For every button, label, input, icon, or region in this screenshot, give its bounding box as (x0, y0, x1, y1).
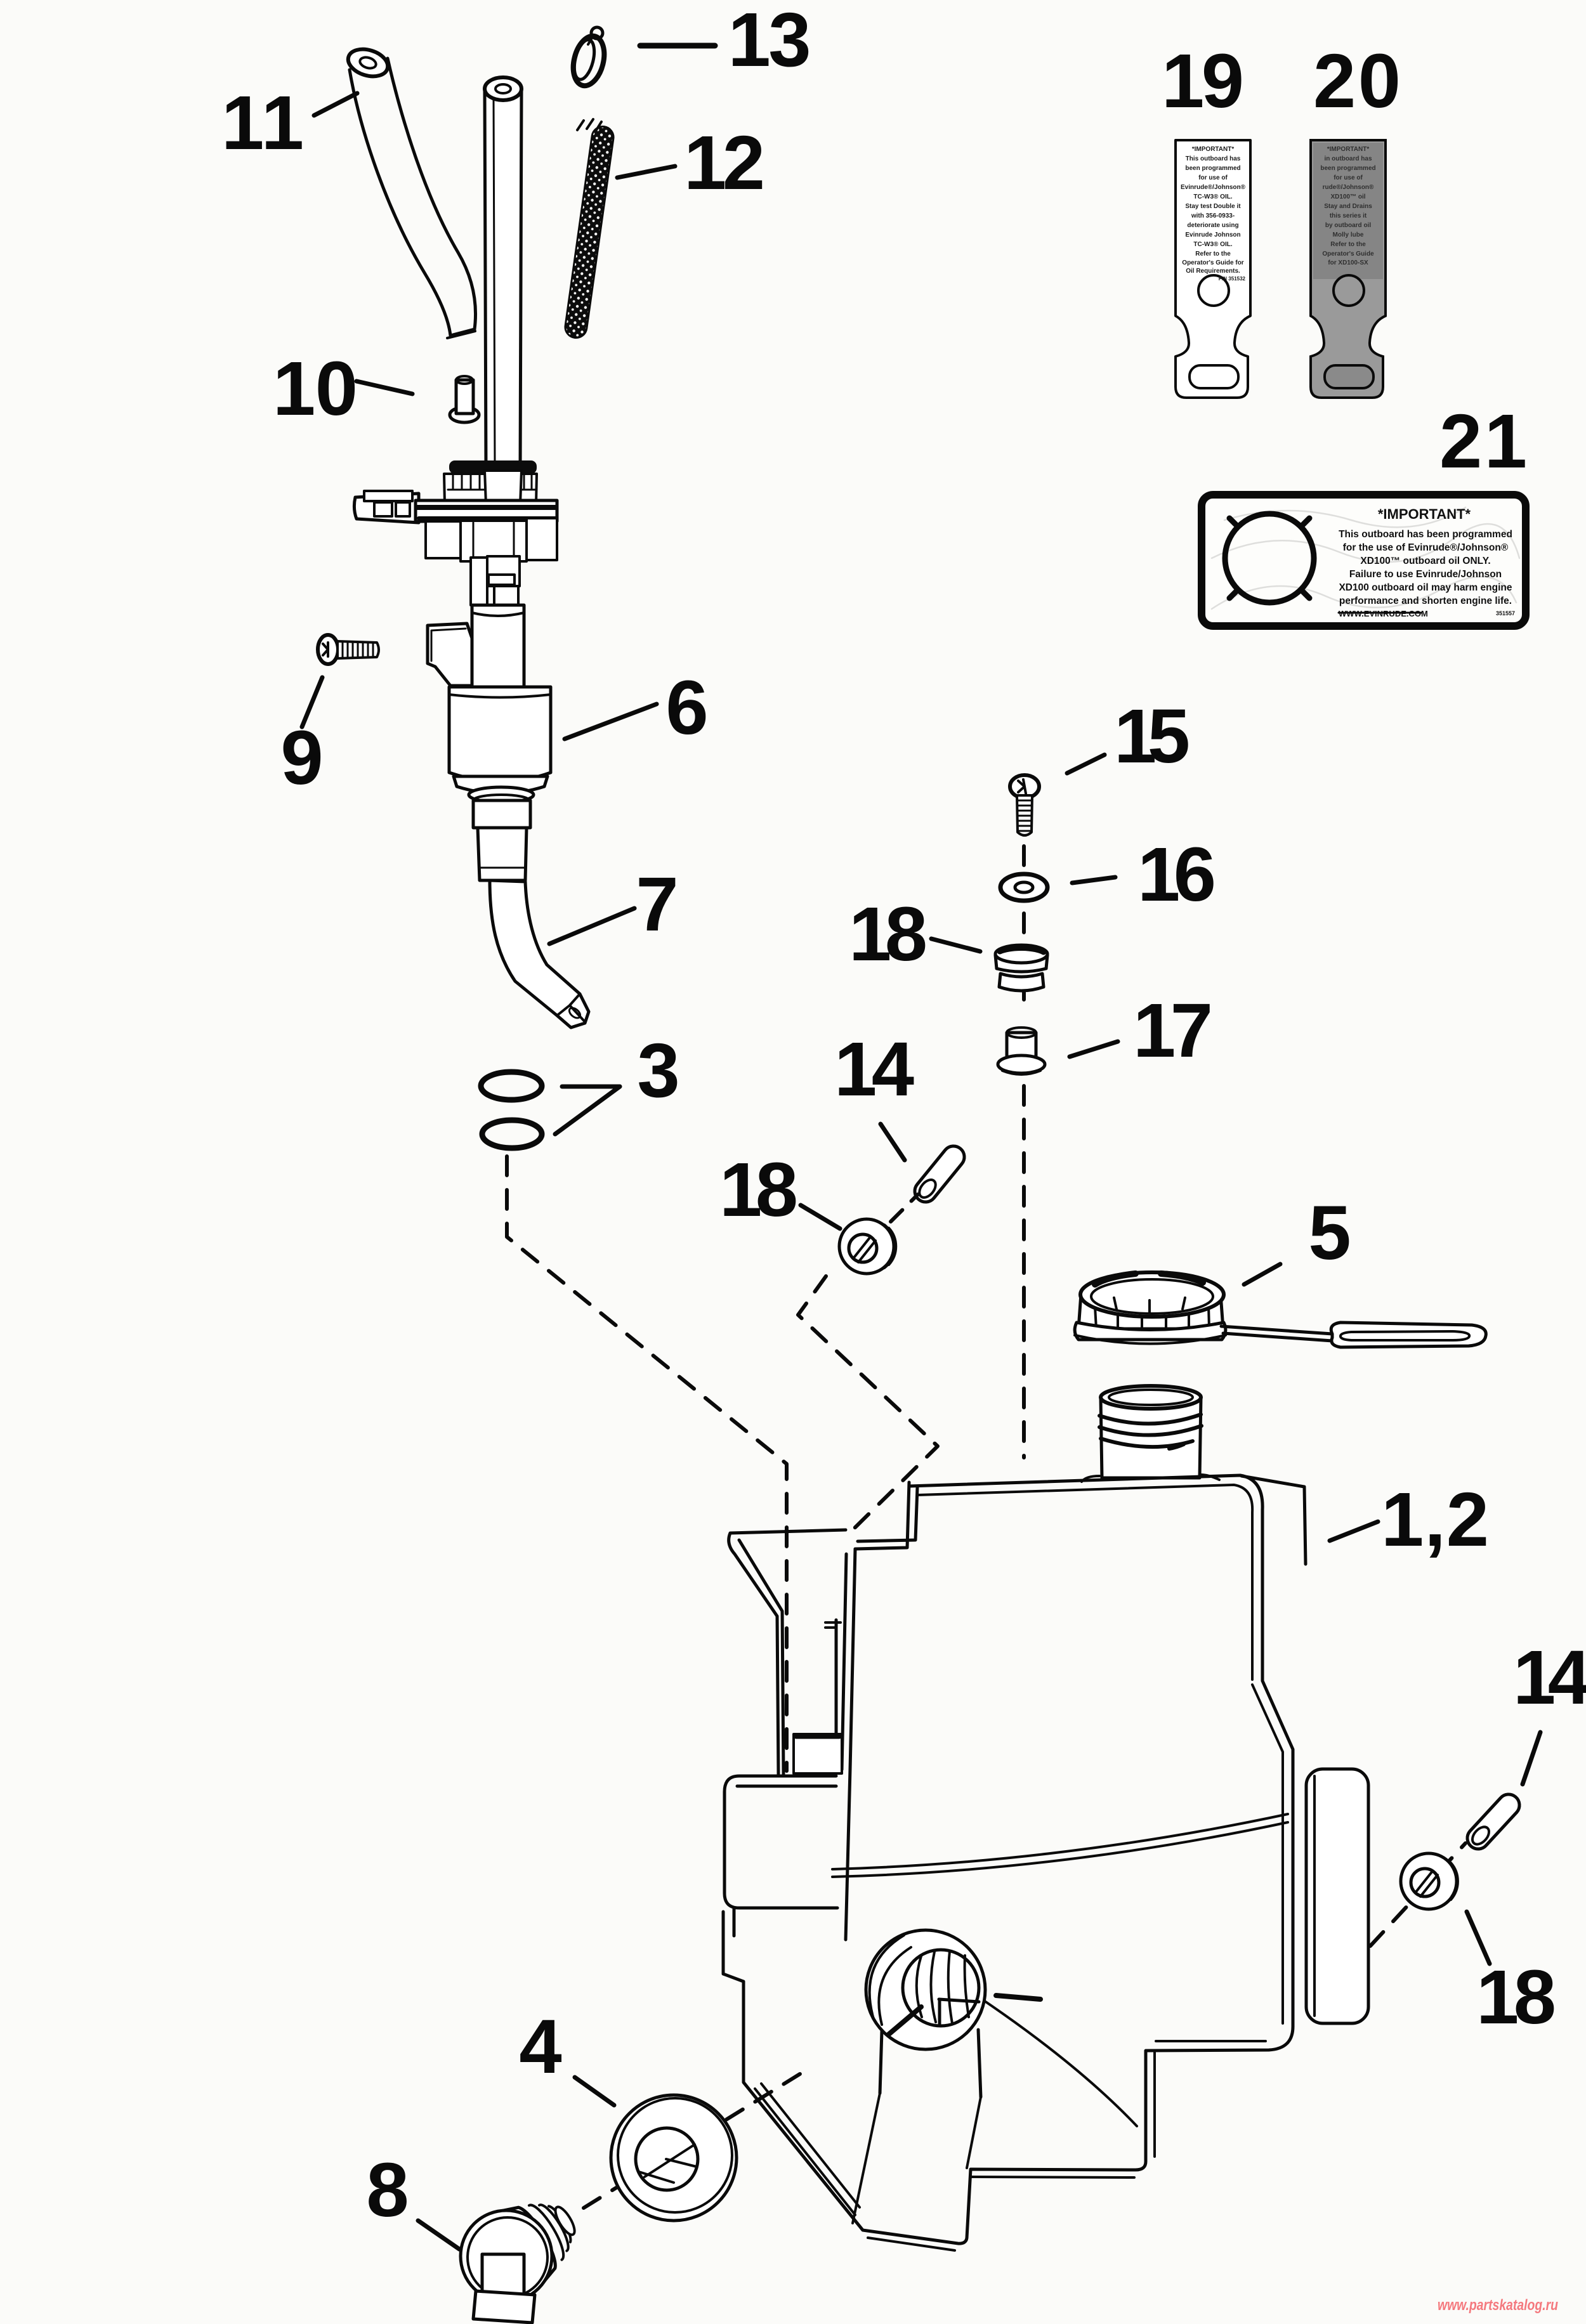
svg-text:for the use of Evinrude®/Johns: for the use of Evinrude®/Johnson® (1343, 542, 1509, 553)
svg-text:with 356-0933-: with 356-0933- (1191, 212, 1235, 219)
svg-text:14: 14 (834, 1026, 914, 1112)
svg-text:Refer to the: Refer to the (1330, 241, 1366, 248)
svg-text:351557: 351557 (1496, 610, 1515, 617)
svg-text:XD100™ outboard oil ONLY.: XD100™ outboard oil ONLY. (1360, 556, 1490, 566)
svg-text:by outboard oil: by outboard oil (1325, 222, 1371, 229)
svg-text:*IMPORTANT*: *IMPORTANT* (1378, 506, 1471, 522)
svg-text:Molly lube: Molly lube (1333, 232, 1364, 238)
svg-text:for use of: for use of (1198, 174, 1228, 181)
svg-text:*IMPORTANT*: *IMPORTANT* (1192, 146, 1235, 153)
svg-text:19: 19 (1162, 37, 1242, 124)
svg-text:13: 13 (728, 0, 809, 82)
svg-text:18: 18 (719, 1146, 796, 1232)
svg-text:for XD100-SX: for XD100-SX (1328, 259, 1368, 266)
svg-text:Stay and Drains: Stay and Drains (1324, 203, 1372, 210)
svg-text:Evinrude Johnson: Evinrude Johnson (1185, 232, 1240, 238)
svg-text:11: 11 (221, 79, 302, 166)
svg-text:17: 17 (1133, 987, 1210, 1073)
svg-text:16: 16 (1137, 831, 1214, 917)
svg-text:Operator's Guide: Operator's Guide (1322, 251, 1374, 258)
svg-text:18: 18 (849, 891, 926, 977)
svg-text:rude®/Johnson®: rude®/Johnson® (1323, 184, 1374, 191)
svg-text:15: 15 (1114, 693, 1188, 779)
svg-text:Failure to use Evinrude/Johnso: Failure to use Evinrude/Johnson (1349, 569, 1502, 580)
svg-text:Operator's Guide for: Operator's Guide for (1182, 259, 1244, 266)
svg-text:6: 6 (665, 664, 705, 750)
svg-text:Refer to the: Refer to the (1195, 251, 1231, 258)
svg-text:XD100 outboard oil may harm en: XD100 outboard oil may harm engine (1339, 582, 1512, 593)
svg-text:TC-W3® OIL.: TC-W3® OIL. (1193, 241, 1232, 248)
svg-text:Stay test Double it: Stay test Double it (1185, 203, 1241, 210)
svg-text:performance and shorten engine: performance and shorten engine life. (1339, 596, 1512, 606)
svg-text:14: 14 (1513, 1634, 1586, 1720)
svg-text:This outboard has been program: This outboard has been programmed (1339, 529, 1512, 540)
svg-text:deteriorate using: deteriorate using (1187, 222, 1238, 229)
svg-text:this series it: this series it (1330, 212, 1367, 219)
svg-text:5: 5 (1308, 1189, 1349, 1276)
svg-text:in outboard has: in outboard has (1325, 155, 1372, 162)
svg-text:This outboard has: This outboard has (1186, 155, 1241, 162)
svg-text:*IMPORTANT*: *IMPORTANT* (1327, 146, 1370, 153)
svg-text:XD100™ oil: XD100™ oil (1330, 193, 1365, 200)
svg-text:18: 18 (1476, 1954, 1554, 2040)
svg-text:www.partskatalog.ru: www.partskatalog.ru (1438, 2297, 1558, 2314)
svg-text:for use of: for use of (1334, 174, 1363, 181)
svg-text:Evinrude®/Johnson®: Evinrude®/Johnson® (1181, 184, 1246, 191)
svg-text:been programmed: been programmed (1320, 165, 1375, 172)
svg-text:Oil Requirements.: Oil Requirements. (1186, 268, 1240, 275)
svg-text:12: 12 (684, 119, 763, 206)
svg-text:1,2: 1,2 (1381, 1476, 1486, 1562)
svg-text:3: 3 (637, 1027, 677, 1113)
svg-text:8: 8 (366, 2146, 407, 2233)
svg-text:been programmed: been programmed (1185, 165, 1240, 172)
svg-text:4: 4 (519, 2003, 561, 2089)
svg-text:P/N 351532: P/N 351532 (1219, 276, 1246, 282)
svg-text:TC-W3® OIL.: TC-W3® OIL. (1193, 193, 1232, 200)
svg-text:9: 9 (280, 714, 320, 800)
svg-text:7: 7 (636, 861, 676, 947)
